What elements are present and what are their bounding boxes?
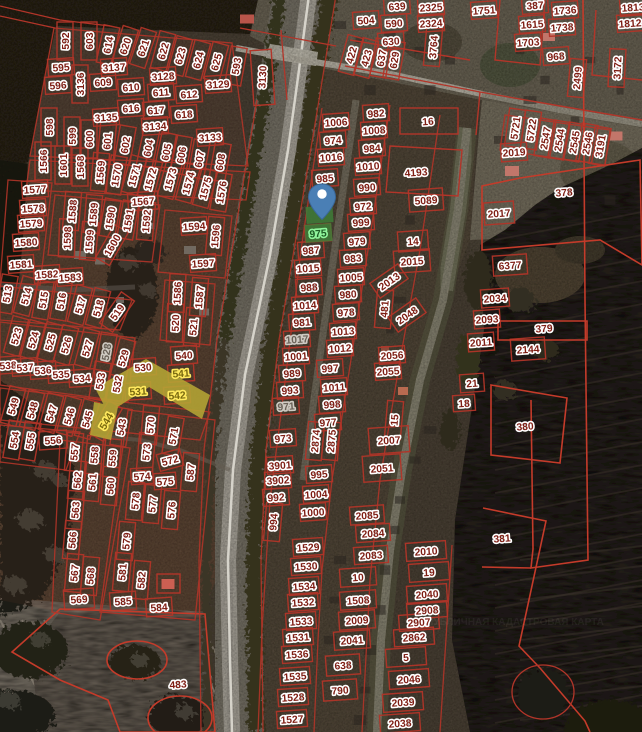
svg-text:1569: 1569 [95, 160, 108, 184]
svg-text:1528: 1528 [281, 692, 305, 705]
svg-text:5089: 5089 [414, 195, 438, 208]
svg-text:2010: 2010 [414, 546, 438, 559]
svg-text:1567: 1567 [131, 196, 155, 209]
svg-text:972: 972 [354, 201, 372, 213]
svg-text:556: 556 [44, 435, 62, 447]
svg-text:1568: 1568 [76, 155, 87, 178]
svg-text:1703: 1703 [516, 37, 540, 50]
svg-text:15: 15 [390, 414, 402, 427]
svg-text:987: 987 [302, 245, 320, 257]
svg-text:1599: 1599 [84, 229, 97, 253]
svg-text:2009: 2009 [345, 615, 369, 628]
svg-text:1013: 1013 [331, 326, 355, 339]
svg-text:585: 585 [114, 596, 132, 608]
svg-text:379: 379 [535, 323, 553, 335]
svg-text:603: 603 [85, 32, 96, 49]
svg-text:2034: 2034 [483, 293, 507, 306]
svg-text:2038: 2038 [388, 718, 412, 731]
svg-text:1588: 1588 [67, 199, 80, 223]
svg-text:537: 537 [16, 362, 34, 374]
svg-text:21: 21 [466, 379, 478, 391]
svg-text:1566: 1566 [39, 149, 50, 172]
svg-text:577: 577 [147, 495, 159, 513]
svg-text:2093: 2093 [475, 314, 499, 327]
svg-text:2040: 2040 [415, 589, 439, 602]
svg-text:574: 574 [133, 471, 151, 483]
svg-text:570: 570 [145, 416, 157, 434]
svg-text:521: 521 [188, 318, 200, 336]
svg-text:3129: 3129 [206, 79, 230, 92]
svg-text:576: 576 [166, 501, 178, 519]
svg-text:610: 610 [122, 82, 140, 94]
svg-text:984: 984 [363, 143, 381, 155]
svg-text:1751: 1751 [472, 5, 496, 18]
svg-text:638: 638 [334, 660, 352, 672]
svg-text:973: 973 [274, 433, 292, 445]
svg-text:579: 579 [121, 532, 133, 550]
svg-text:2041: 2041 [340, 635, 364, 648]
svg-text:980: 980 [339, 289, 357, 301]
svg-text:2011: 2011 [470, 337, 493, 350]
svg-text:3137: 3137 [102, 62, 126, 75]
svg-text:1530: 1530 [294, 561, 318, 574]
svg-text:582: 582 [136, 571, 148, 589]
svg-text:639: 639 [388, 1, 406, 13]
svg-text:530: 530 [134, 362, 152, 374]
svg-text:1008: 1008 [362, 125, 386, 138]
svg-text:1589: 1589 [88, 202, 101, 226]
svg-text:1736: 1736 [553, 5, 577, 18]
svg-text:1012: 1012 [328, 343, 352, 356]
svg-text:1738: 1738 [550, 22, 574, 35]
svg-text:2083: 2083 [359, 550, 383, 563]
svg-text:1578: 1578 [21, 203, 45, 216]
svg-text:1579: 1579 [19, 218, 43, 231]
svg-text:2039: 2039 [391, 697, 415, 710]
svg-text:971: 971 [277, 401, 295, 413]
svg-text:1581: 1581 [9, 259, 33, 272]
svg-text:380: 380 [516, 421, 534, 433]
svg-text:5: 5 [403, 653, 410, 664]
svg-text:3135: 3135 [94, 112, 118, 125]
svg-text:596: 596 [49, 80, 67, 92]
svg-text:990: 990 [358, 182, 376, 194]
svg-text:1531: 1531 [286, 632, 310, 645]
svg-text:14: 14 [407, 237, 419, 249]
svg-text:1011: 1011 [323, 382, 346, 395]
svg-text:531: 531 [129, 386, 147, 398]
svg-text:562: 562 [72, 471, 84, 489]
svg-text:1016: 1016 [319, 152, 343, 165]
svg-text:1587: 1587 [194, 285, 207, 309]
svg-text:1598: 1598 [63, 226, 75, 250]
svg-text:ПУБЛИЧНАЯ КАДАСТРОВАЯ КАРТА: ПУБЛИЧНАЯ КАДАСТРОВАЯ КАРТА [426, 617, 604, 628]
svg-text:988: 988 [300, 282, 318, 294]
svg-text:3134: 3134 [143, 121, 167, 134]
svg-text:1536: 1536 [285, 649, 309, 662]
svg-text:1533: 1533 [289, 616, 313, 629]
svg-text:1529: 1529 [296, 542, 320, 555]
svg-text:2007: 2007 [377, 435, 401, 448]
svg-text:520: 520 [171, 314, 183, 332]
svg-text:1534: 1534 [292, 581, 316, 594]
svg-text:1597: 1597 [191, 258, 215, 271]
svg-text:1014: 1014 [293, 300, 317, 313]
svg-text:6377: 6377 [498, 260, 522, 273]
svg-text:2017: 2017 [487, 208, 511, 221]
svg-text:601: 601 [102, 132, 114, 150]
svg-text:541: 541 [172, 368, 190, 380]
svg-text:19: 19 [423, 568, 435, 580]
svg-text:578: 578 [130, 492, 142, 510]
svg-text:992: 992 [267, 492, 285, 504]
svg-text:3136: 3136 [76, 72, 87, 95]
svg-text:535: 535 [52, 369, 70, 381]
svg-text:378: 378 [555, 187, 573, 199]
svg-text:790: 790 [331, 685, 349, 697]
svg-text:3133: 3133 [198, 132, 222, 145]
svg-text:504: 504 [357, 15, 375, 27]
svg-text:985: 985 [316, 173, 334, 185]
svg-text:1577: 1577 [23, 184, 47, 197]
svg-text:2051: 2051 [370, 463, 394, 476]
svg-text:598: 598 [45, 118, 56, 135]
svg-text:483: 483 [169, 679, 187, 691]
svg-text:979: 979 [348, 236, 366, 248]
svg-text:2055: 2055 [376, 366, 400, 379]
svg-text:1000: 1000 [301, 507, 325, 520]
svg-text:1601: 1601 [59, 153, 70, 176]
svg-text:542: 542 [168, 390, 186, 402]
svg-text:1813: 1813 [621, 2, 642, 15]
svg-text:1596: 1596 [210, 224, 223, 248]
svg-text:974: 974 [324, 135, 342, 147]
svg-text:997: 997 [321, 363, 339, 375]
svg-text:982: 982 [367, 108, 385, 120]
svg-text:612: 612 [180, 89, 198, 101]
svg-text:2325: 2325 [419, 2, 443, 15]
svg-text:2085: 2085 [355, 510, 379, 523]
svg-text:566: 566 [67, 531, 79, 549]
svg-text:575: 575 [156, 476, 174, 488]
svg-text:975: 975 [309, 228, 327, 240]
svg-text:592: 592 [61, 32, 72, 49]
svg-text:563: 563 [70, 501, 82, 519]
svg-text:573: 573 [141, 443, 153, 461]
svg-text:600: 600 [85, 130, 96, 147]
svg-text:999: 999 [352, 217, 370, 229]
svg-text:534: 534 [73, 373, 91, 385]
svg-text:558: 558 [89, 446, 101, 464]
svg-text:3130: 3130 [257, 65, 269, 89]
svg-text:611: 611 [152, 87, 170, 99]
svg-text:1005: 1005 [339, 272, 363, 285]
svg-text:584: 584 [150, 602, 168, 614]
svg-text:1015: 1015 [296, 263, 320, 276]
svg-text:567: 567 [69, 564, 81, 582]
svg-text:2324: 2324 [419, 18, 443, 31]
svg-text:538: 538 [0, 360, 17, 372]
svg-text:1527: 1527 [280, 714, 304, 727]
svg-text:998: 998 [323, 399, 341, 411]
svg-text:2874: 2874 [310, 429, 323, 453]
svg-text:587: 587 [185, 463, 197, 481]
svg-text:3902: 3902 [266, 475, 290, 488]
svg-text:1017: 1017 [285, 334, 309, 347]
svg-text:3764: 3764 [428, 35, 441, 59]
svg-text:1586: 1586 [172, 281, 184, 305]
svg-text:993: 993 [281, 385, 299, 397]
svg-text:1580: 1580 [14, 237, 38, 250]
svg-text:2875: 2875 [326, 429, 339, 453]
svg-text:569: 569 [70, 594, 88, 606]
svg-text:618: 618 [175, 109, 193, 121]
svg-text:1532: 1532 [291, 597, 315, 610]
svg-text:609: 609 [94, 77, 112, 89]
svg-text:616: 616 [122, 103, 140, 115]
svg-text:10: 10 [352, 573, 364, 585]
svg-text:2046: 2046 [397, 674, 421, 687]
svg-text:481: 481 [379, 300, 391, 318]
svg-text:1535: 1535 [283, 671, 307, 684]
svg-text:559: 559 [107, 449, 119, 467]
svg-text:2084: 2084 [361, 528, 385, 541]
svg-text:3128: 3128 [151, 71, 175, 84]
svg-text:981: 981 [293, 317, 311, 329]
svg-text:387: 387 [526, 0, 544, 12]
svg-text:536: 536 [34, 365, 52, 377]
svg-text:540: 540 [175, 350, 193, 362]
svg-text:977: 977 [319, 417, 337, 429]
svg-text:1592: 1592 [141, 209, 154, 233]
svg-text:595: 595 [52, 62, 70, 74]
svg-text:599: 599 [68, 127, 79, 144]
svg-text:1004: 1004 [304, 489, 328, 502]
svg-text:16: 16 [422, 117, 434, 129]
svg-text:4193: 4193 [404, 167, 428, 180]
svg-text:2019: 2019 [502, 147, 526, 160]
svg-text:1006: 1006 [324, 117, 348, 130]
svg-text:995: 995 [310, 469, 328, 481]
svg-text:568: 568 [85, 567, 97, 585]
svg-text:381: 381 [493, 533, 511, 545]
svg-text:560: 560 [105, 477, 117, 495]
svg-text:1583: 1583 [58, 272, 82, 285]
svg-text:1812: 1812 [618, 18, 642, 31]
svg-text:630: 630 [382, 36, 400, 48]
svg-text:2908: 2908 [415, 605, 439, 618]
svg-text:989: 989 [283, 368, 301, 380]
svg-text:1594: 1594 [182, 221, 206, 234]
svg-text:3172: 3172 [612, 56, 624, 80]
svg-text:3901: 3901 [268, 460, 292, 473]
svg-text:978: 978 [337, 307, 355, 319]
svg-text:2862: 2862 [402, 632, 426, 645]
svg-text:1508: 1508 [346, 595, 370, 608]
svg-text:2015: 2015 [400, 256, 424, 269]
svg-text:994: 994 [268, 513, 280, 531]
svg-text:557: 557 [69, 443, 81, 461]
svg-text:2056: 2056 [380, 350, 404, 363]
svg-text:617: 617 [147, 105, 165, 117]
svg-text:1001: 1001 [284, 351, 308, 364]
svg-text:581: 581 [117, 563, 129, 581]
svg-text:561: 561 [87, 473, 99, 491]
svg-text:1615: 1615 [520, 19, 544, 32]
svg-text:590: 590 [385, 18, 403, 30]
svg-text:18: 18 [458, 399, 470, 411]
svg-text:1010: 1010 [356, 161, 380, 174]
svg-text:2144: 2144 [516, 344, 540, 357]
svg-text:2499: 2499 [572, 66, 585, 90]
svg-text:983: 983 [344, 253, 362, 265]
svg-text:1582: 1582 [35, 269, 59, 282]
svg-text:968: 968 [547, 51, 565, 63]
